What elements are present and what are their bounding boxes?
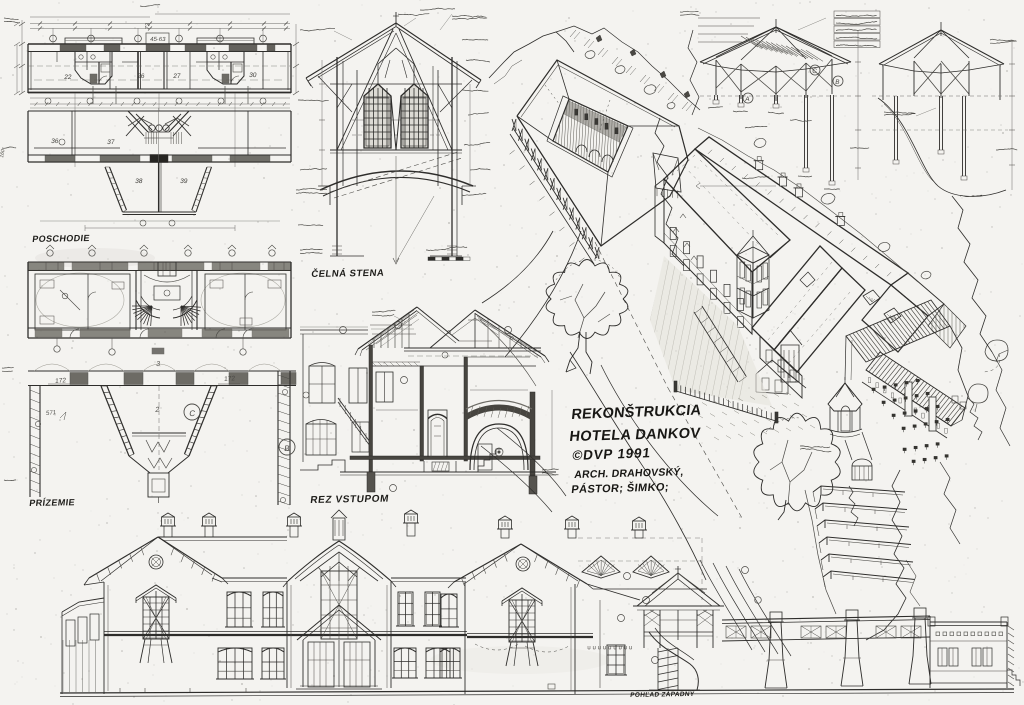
svg-text:45·63: 45·63 [150, 37, 167, 43]
svg-text:27: 27 [173, 73, 182, 80]
svg-text:©DVP 1991: ©DVP 1991 [572, 445, 652, 463]
svg-text:36: 36 [51, 138, 60, 145]
svg-text:POSCHODIE: POSCHODIE [32, 233, 91, 244]
svg-text:ČELNÁ STENA: ČELNÁ STENA [311, 267, 385, 280]
svg-text:37: 37 [107, 139, 116, 146]
svg-text:PÁSTOR; ŠIMKO;: PÁSTOR; ŠIMKO; [571, 480, 670, 496]
svg-text:172: 172 [224, 375, 236, 383]
svg-text:571: 571 [46, 410, 57, 417]
svg-text:REZ VSTUPOM: REZ VSTUPOM [310, 494, 390, 506]
svg-text:38: 38 [135, 178, 144, 185]
svg-text:PRÍZEMIE: PRÍZEMIE [29, 497, 76, 508]
svg-text:39: 39 [180, 178, 189, 185]
svg-text:30: 30 [249, 72, 258, 79]
